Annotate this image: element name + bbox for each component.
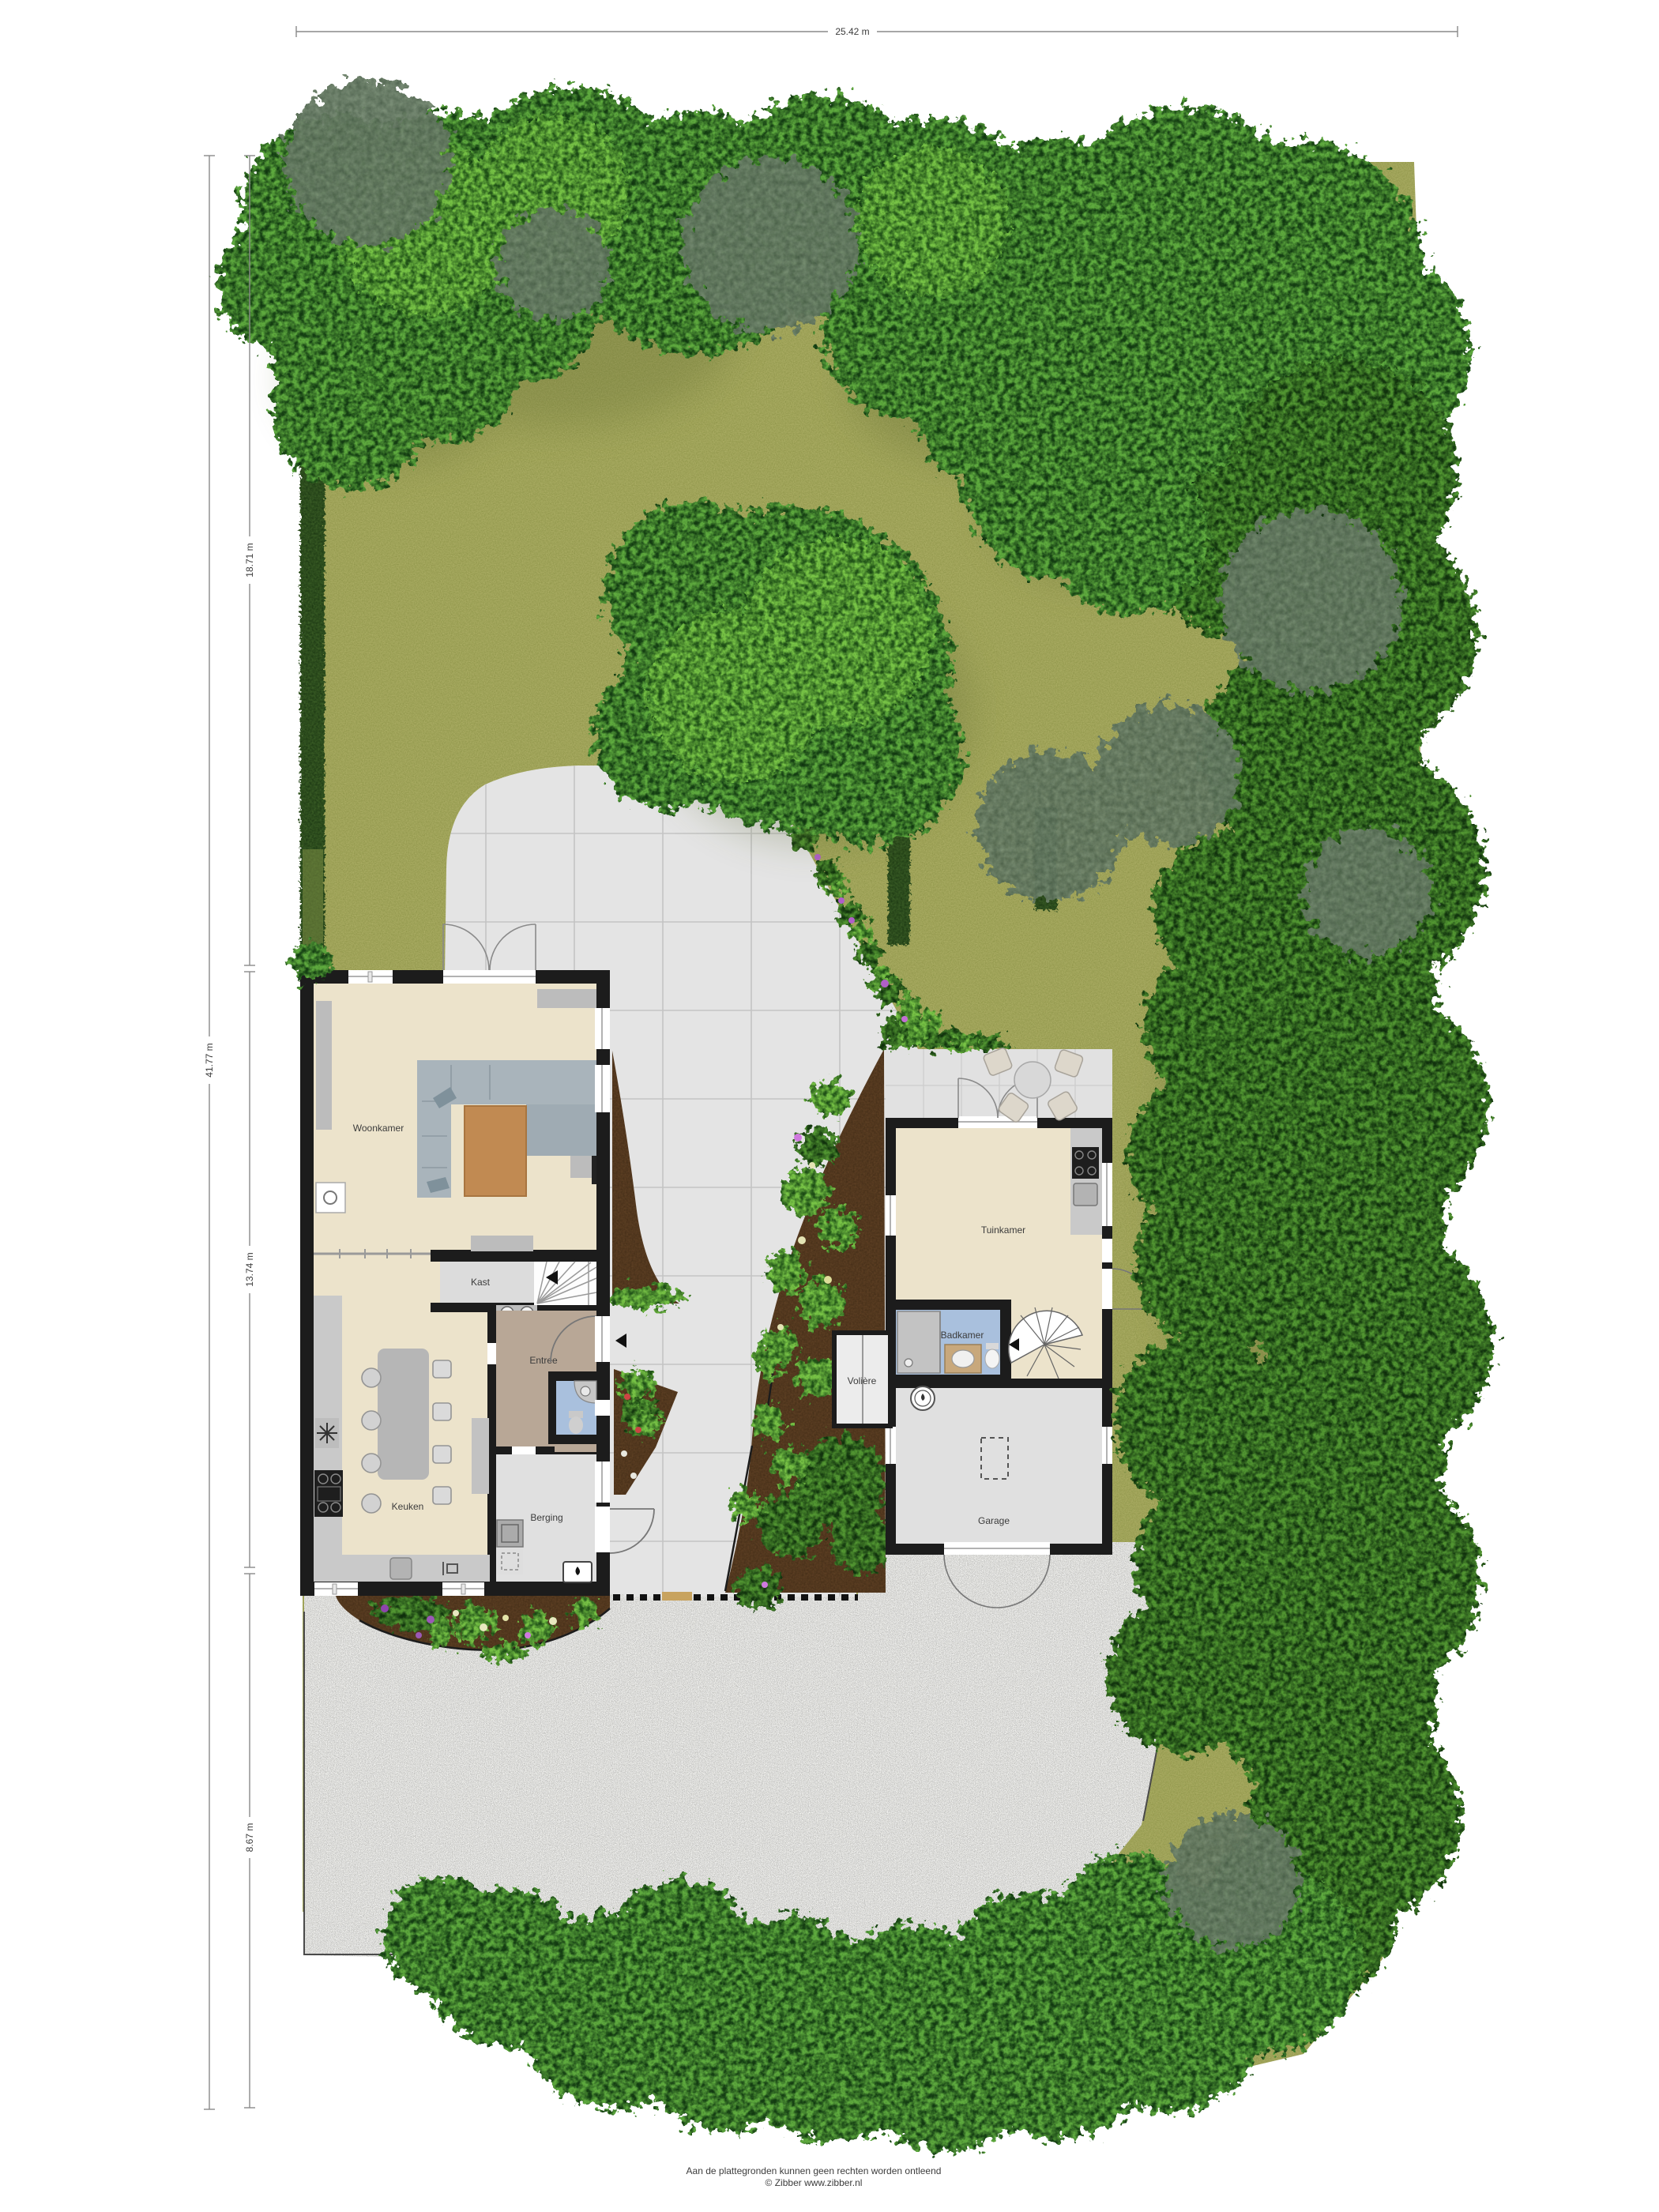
- svg-text:Keuken: Keuken: [392, 1501, 424, 1512]
- svg-text:8.67 m: 8.67 m: [244, 1823, 255, 1853]
- svg-text:© Zibber www.zibber.nl: © Zibber www.zibber.nl: [766, 2177, 863, 2188]
- svg-text:Volière: Volière: [848, 1375, 877, 1386]
- svg-text:Kast: Kast: [471, 1277, 491, 1288]
- svg-text:18.71 m: 18.71 m: [244, 543, 255, 577]
- svg-text:Aan de plattegronden kunnen ge: Aan de plattegronden kunnen geen rechten…: [687, 2165, 942, 2176]
- svg-text:25.42 m: 25.42 m: [835, 26, 869, 37]
- svg-text:Entree: Entree: [529, 1355, 558, 1366]
- svg-text:41.77 m: 41.77 m: [204, 1043, 215, 1077]
- svg-text:13.74 m: 13.74 m: [244, 1252, 255, 1286]
- svg-text:Tuinkamer: Tuinkamer: [981, 1224, 1025, 1236]
- svg-text:Woonkamer: Woonkamer: [353, 1123, 404, 1134]
- svg-text:Badkamer: Badkamer: [941, 1330, 984, 1341]
- svg-text:Garage: Garage: [978, 1515, 1010, 1526]
- svg-text:Berging: Berging: [530, 1512, 562, 1523]
